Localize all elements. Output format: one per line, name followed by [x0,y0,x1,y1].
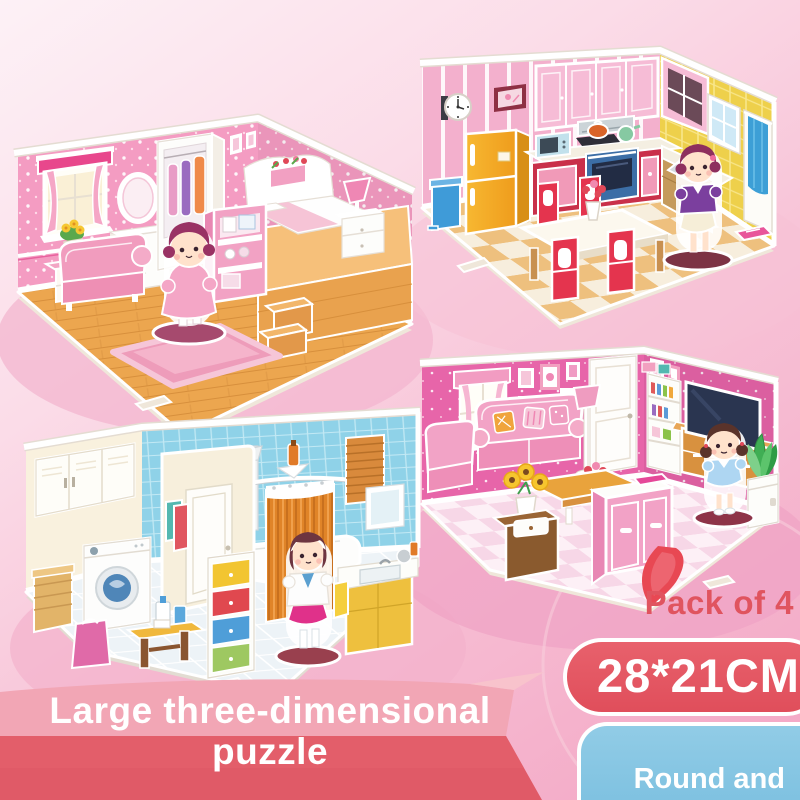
safety-badge: Round and non-harmful [577,722,800,800]
kitchen-clock [441,94,471,120]
banner-title: Large three-dimensional puzzle [0,690,540,772]
bathroom-mirror [366,484,404,530]
title-banner: Large three-dimensional puzzle [0,668,560,800]
bathroom-laundry-basket [32,564,74,632]
bathroom-laundry-bag [72,620,110,668]
kitchen-chair-front-left [552,237,578,301]
size-badge: 28*21CM [563,638,800,716]
kitchen-chair-front-right [608,229,634,293]
bathroom-laundry-scene [16,398,428,708]
size-badge-label: 28*21CM [567,642,800,710]
living-armchair-left [426,421,475,492]
banner-title-line2: puzzle [0,731,540,772]
safety-badge-line1: Round and [581,744,800,796]
bedroom-scene [8,106,420,446]
kitchen-picture-frame [494,84,526,112]
kitchen-fridge [466,130,530,234]
kitchen-scene [410,36,798,336]
pack-count-label: Pack of 4 [645,584,794,622]
living-room-scene [410,332,790,622]
banner-title-line1: Large three-dimensional [0,690,540,731]
kitchen-microwave [536,132,570,158]
kitchen-upper-cabinets [536,58,708,136]
living-sofa [471,394,587,470]
bathroom-drawer-tower [208,552,254,678]
living-door [590,356,636,474]
safety-badge-line2: non-harmful [581,796,800,800]
kitchen-trash-bin [428,177,462,230]
kitchen-door [744,110,772,232]
product-image: Large three-dimensional puzzle Pack of 4… [0,0,800,800]
bathroom-washer [84,538,150,632]
